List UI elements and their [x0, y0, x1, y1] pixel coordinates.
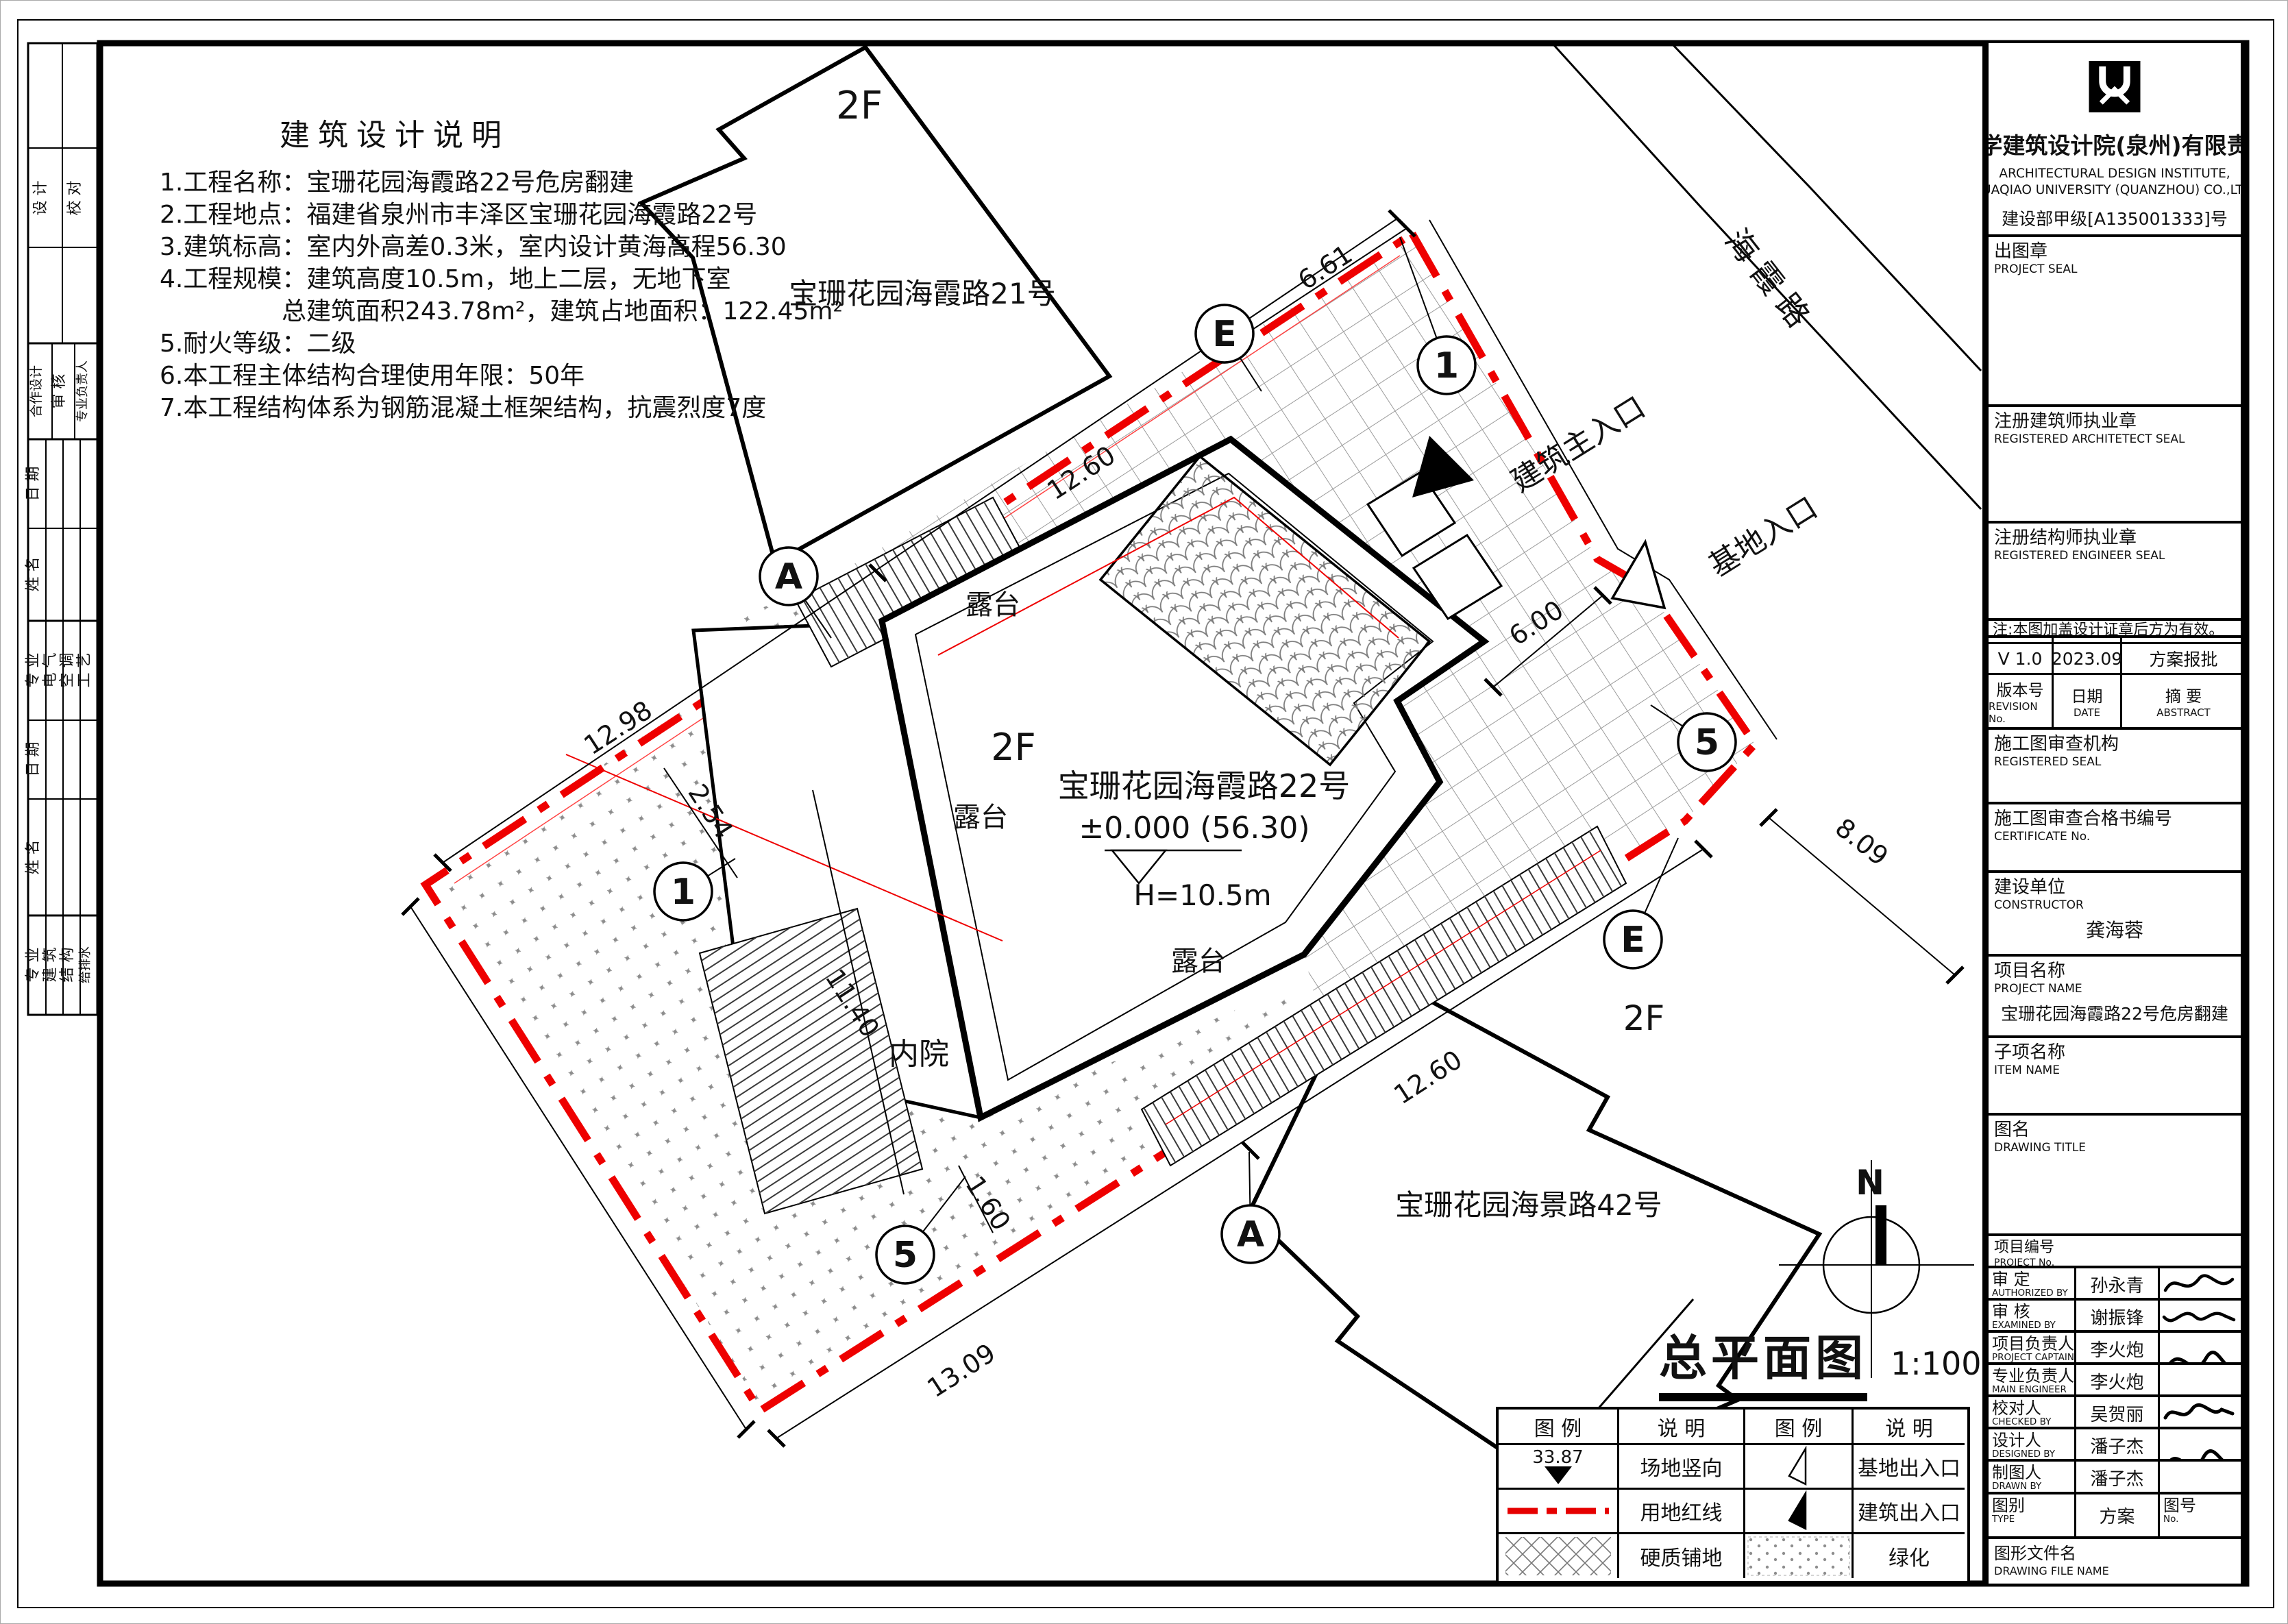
sig-role-en: MAIN ENGINEER: [1992, 1385, 2071, 1395]
dim-8-09: 8.09: [1830, 812, 1894, 872]
constructor-cn: 建设单位: [1994, 877, 2235, 898]
title-block: 华侨大学建筑设计院(泉州)有限责任公司 ARCHITECTURAL DESIGN…: [1984, 43, 2246, 1584]
sig-role-en: CHECKED BY: [1992, 1417, 2071, 1427]
note-line: 7.本工程结构体系为钢筋混凝土框架结构，抗震烈度7度: [160, 392, 811, 424]
revision-table: V 1.0 2023.09 方案报批 版本号 REVISION No. 日期 D…: [1989, 638, 2241, 730]
company-name-en1: ARCHITECTURAL DESIGN INSTITUTE,: [1989, 166, 2241, 182]
legend-desc: 场地竖向: [1619, 1445, 1745, 1490]
legend-desc: 硬质铺地: [1619, 1534, 1745, 1578]
legend-desc: 绿化: [1854, 1534, 1965, 1578]
sig-role-cn: 审 核: [1992, 1303, 2071, 1320]
signature-scribble: [2160, 1397, 2241, 1429]
sig-role-en: DESIGNED BY: [1992, 1449, 2071, 1460]
sig-role-cn: 校对人: [1992, 1399, 2071, 1417]
project-name-cn: 项目名称: [1994, 961, 2235, 981]
signature-row: 专业负责人MAIN ENGINEER 李火炮: [1989, 1365, 2241, 1397]
project-name-value: 宝珊花园海霞路22号危房翻建: [1989, 1000, 2241, 1025]
architect-seal-en: REGISTERED ARCHITETECT SEAL: [1994, 432, 2235, 447]
plan-title-text: 总平面图: [1659, 1320, 1867, 1401]
sidebar-cell: 审 核: [51, 374, 68, 409]
legend-header: 说 明: [1854, 1410, 1965, 1445]
sig-name: 潘子杰: [2076, 1462, 2160, 1494]
legend-desc: 基地出入口: [1854, 1445, 1965, 1490]
signature-row: 校对人CHECKED BY 吴贺丽: [1989, 1397, 2241, 1429]
review-org-cn: 施工图审查机构: [1994, 734, 2235, 754]
review-org-en: REGISTERED SEAL: [1994, 754, 2235, 770]
architect-seal-cell: 注册建筑师执业章 REGISTERED ARCHITETECT SEAL: [1989, 407, 2241, 524]
note-line: 5.耐火等级：二级: [160, 328, 811, 360]
sig-role-en: AUTHORIZED BY: [1992, 1288, 2071, 1299]
sig-role-en: EXAMINED BY: [1992, 1320, 2071, 1331]
spot-elevation-icon: [1545, 1466, 1572, 1484]
sig-role-cn: 项目负责人: [1992, 1335, 2071, 1353]
sidebar-cell: 建 筑: [42, 948, 59, 983]
rev-col2-en: DATE: [2074, 706, 2100, 719]
sidebar-cell: 专 业: [25, 653, 42, 688]
type-en: TYPE: [1992, 1514, 2071, 1525]
revision-col3-header: 摘 要 ABSTRACT: [2122, 675, 2241, 727]
validity-note: 注:本图加盖设计证章后方为有效。: [1993, 621, 2224, 638]
legend-symbol-spot-elevation: 33.87: [1499, 1445, 1619, 1490]
axis-bubble-label: 1: [671, 872, 696, 913]
file-name-en: DRAWING FILE NAME: [1994, 1564, 2235, 1579]
item-name-cn: 子项名称: [1994, 1042, 2235, 1063]
plan-title: 总平面图 1:100: [1659, 1320, 1982, 1401]
legend-symbol-hard-paving: [1499, 1534, 1619, 1578]
revision-empty: [1989, 638, 2054, 644]
legend-header: 图 例: [1499, 1410, 1619, 1445]
company-name-cn: 华侨大学建筑设计院(泉州)有限责任公司: [1989, 127, 2241, 160]
certificate-no-cell: 施工图审查合格书编号 CERTIFICATE No.: [1989, 804, 2241, 873]
note-line: 2.工程地点：福建省泉州市丰泽区宝珊花园海霞路22号: [160, 199, 811, 231]
company-header: 华侨大学建筑设计院(泉州)有限责任公司 ARCHITECTURAL DESIGN…: [1989, 43, 2241, 237]
sig-name: 潘子杰: [2076, 1429, 2160, 1462]
dim-13-09: 13.09: [922, 1338, 1000, 1403]
company-certificate: 建设部甲级[A135001333]号: [2002, 206, 2228, 230]
signature-row: 设计人DESIGNED BY 潘子杰: [1989, 1429, 2241, 1462]
sidebar-cell: 电 气: [42, 653, 59, 688]
terrace-label: 露台: [1171, 946, 1226, 977]
axis-bubble-label: 1: [1434, 345, 1459, 386]
rev-col1-en: REVISION No.: [1989, 700, 2052, 725]
drawing-no-cn: 图号: [2163, 1497, 2237, 1514]
architect-seal-cn: 注册建筑师执业章: [1994, 411, 2235, 432]
drawing-title-cn: 图名: [1994, 1120, 2235, 1140]
legend-table: 图 例 说 明 图 例 说 明 33.87 场地竖向 基地出入口 用地红线 建筑…: [1496, 1407, 1970, 1584]
drawing-title-cell: 图名 DRAWING TITLE: [1989, 1116, 2241, 1236]
note-line: 4.工程规模：建筑高度10.5m，地上二层，无地下室: [160, 263, 811, 295]
main-building-height: H=10.5m: [1133, 878, 1271, 912]
type-row: 图别TYPE 方案 图号No.: [1989, 1494, 2241, 1539]
certificate-no-cn: 施工图审查合格书编号: [1994, 809, 2235, 829]
design-notes: 建筑设计说明 1.工程名称：宝珊花园海霞路22号危房翻建 2.工程地点：福建省泉…: [160, 110, 811, 424]
main-building-level: ±0.000 (56.30): [1079, 811, 1309, 846]
legend-header: 图 例: [1745, 1410, 1854, 1445]
axis-bubble-label: 5: [893, 1235, 918, 1276]
sidebar-cell: 校 对: [66, 181, 84, 216]
sig-role-cn: 设计人: [1992, 1431, 2071, 1449]
revision-empty: [2054, 638, 2122, 644]
sidebar-cell: 姓 名: [25, 840, 42, 875]
neighbor-south-label: 宝珊花园海景路42号: [1395, 1188, 1662, 1222]
engineer-seal-cell: 注册结构师执业章 REGISTERED ENGINEER SEAL: [1989, 524, 2241, 621]
drawing-sheet: 设 计 校 对 合作设计 审 核 专业负责人 日 期 姓 名 专 业 电 气 空…: [0, 0, 2288, 1624]
plan-title-scale: 1:100: [1891, 1345, 1982, 1382]
note-line: 6.本工程主体结构合理使用年限：50年: [160, 360, 811, 392]
constructor-en: CONSTRUCTOR: [1994, 898, 2235, 913]
drawing-title-en: DRAWING TITLE: [1994, 1140, 2235, 1155]
signature-row: 制图人DRAWN BY 潘子杰: [1989, 1462, 2241, 1494]
revision-col2-header: 日期 DATE: [2054, 675, 2122, 727]
sidebar-cell: 结 构: [59, 948, 76, 983]
project-name-cell: 项目名称 PROJECT NAME 宝珊花园海霞路22号危房翻建: [1989, 957, 2241, 1038]
project-name-en: PROJECT NAME: [1994, 981, 2235, 996]
axis-bubble-label: E: [1212, 314, 1237, 355]
signature-scribble: [2160, 1268, 2241, 1301]
signature-row: 审 核EXAMINED BY 谢振锋: [1989, 1301, 2241, 1333]
revision-col1-header: 版本号 REVISION No.: [1989, 675, 2054, 727]
project-no-cell: 项目编号 PROJECT No.: [1989, 1236, 2241, 1268]
filled-triangle-icon: [1785, 1490, 1812, 1531]
signature-scribble: [2160, 1365, 2241, 1397]
terrace-label: 露台: [965, 589, 1020, 621]
sidebar-cell: 合作设计: [29, 365, 44, 417]
signature-row: 审 定AUTHORIZED BY 孙永青: [1989, 1268, 2241, 1301]
sig-role-cn: 制图人: [1992, 1464, 2071, 1481]
company-name-en2: HUAQIAO UNIVERSITY (QUANZHOU) CO.,LTD.: [1989, 182, 2241, 199]
sig-role-en: PROJECT CAPTAIN: [1992, 1353, 2071, 1363]
rev-col3-en: ABSTRACT: [2156, 706, 2210, 719]
notes-title: 建筑设计说明: [280, 110, 811, 154]
item-name-cell: 子项名称 ITEM NAME: [1989, 1038, 2241, 1116]
site-entrance-label: 基地入口: [1703, 490, 1823, 584]
signature-scribble: [2160, 1301, 2241, 1333]
sig-name: 李火炮: [2076, 1333, 2160, 1365]
sig-name: 孙永青: [2076, 1268, 2160, 1301]
note-line: 3.建筑标高：室内外高差0.3米，室内设计黄海高程56.30: [160, 231, 811, 263]
sidebar-cell: 日 期: [25, 742, 42, 777]
note-line: 总建筑面积243.78m²，建筑占地面积：122.45m²: [160, 295, 811, 328]
file-name-cn: 图形文件名: [1994, 1543, 2235, 1564]
sig-role-en: DRAWN BY: [1992, 1481, 2071, 1492]
rev-col1-cn: 版本号: [1997, 677, 2044, 700]
constructor-value: 龚海蓉: [1989, 915, 2241, 943]
legend-symbol-greenery: [1745, 1534, 1854, 1578]
company-logo-icon: [2089, 61, 2141, 112]
terrace-label: 露台: [953, 802, 1008, 833]
sidebar-cell: 专业负责人: [75, 360, 90, 422]
sig-role-cn: 专业负责人: [1992, 1367, 2071, 1385]
signature-scribble: [2160, 1333, 2241, 1365]
legend-header: 说 明: [1619, 1410, 1745, 1445]
file-name-cell: 图形文件名 DRAWING FILE NAME: [1989, 1539, 2241, 1584]
sig-role-cn: 审 定: [1992, 1270, 2071, 1288]
axis-bubble-label: A: [1237, 1214, 1264, 1255]
review-org-cell: 施工图审查机构 REGISTERED SEAL: [1989, 730, 2241, 804]
constructor-cell: 建设单位 CONSTRUCTOR 龚海蓉: [1989, 873, 2241, 957]
spot-elevation-value: 33.87: [1532, 1449, 1583, 1466]
open-triangle-icon: [1785, 1446, 1812, 1487]
sig-name: 吴贺丽: [2076, 1397, 2160, 1429]
sidebar-cell: 专 业: [25, 948, 42, 983]
greenery-dots-icon: [1747, 1536, 1850, 1576]
sidebar-cell: 给排水: [78, 946, 93, 983]
note-line: 1.工程名称：宝珊花园海霞路22号危房翻建: [160, 167, 811, 199]
floors-label-2f: 2F: [1623, 998, 1665, 1038]
road-label: 海霞路: [1718, 222, 1823, 342]
rev-col3-cn: 摘 要: [2165, 683, 2202, 706]
certificate-no-en: CERTIFICATE No.: [1994, 829, 2235, 844]
axis-bubble-label: 5: [1695, 722, 1719, 763]
signature-scribble: [2160, 1462, 2241, 1494]
legend-symbol-building-entrance: [1745, 1490, 1854, 1534]
revision-abstract: 方案报批: [2122, 644, 2241, 675]
signature-scribble: [2160, 1429, 2241, 1462]
signature-row: 项目负责人PROJECT CAPTAIN 李火炮: [1989, 1333, 2241, 1365]
drawing-no-en: No.: [2163, 1514, 2237, 1525]
axis-bubble-label: E: [1621, 920, 1645, 961]
sidebar-cell: 姓 名: [25, 557, 42, 592]
main-building-name: 宝珊花园海霞路22号: [1058, 767, 1351, 804]
sidebar-cell: 空 调: [59, 653, 76, 688]
project-no-cn: 项目编号: [1994, 1239, 2054, 1256]
sidebar-cell: 设 计: [32, 181, 49, 216]
red-dashdot-icon: [1505, 1504, 1612, 1518]
sig-name: 李火炮: [2076, 1365, 2160, 1397]
revision-empty: [2122, 638, 2241, 644]
rev-col2-cn: 日期: [2071, 683, 2103, 706]
sig-name: 谢振锋: [2076, 1301, 2160, 1333]
floors-label-2f: 2F: [991, 726, 1035, 769]
revision-version: V 1.0: [1989, 644, 2054, 675]
type-value: 方案: [2076, 1494, 2160, 1536]
item-name-en: ITEM NAME: [1994, 1063, 2235, 1078]
north-label: N: [1856, 1163, 1884, 1203]
engineer-seal-cn: 注册结构师执业章: [1994, 528, 2235, 548]
legend-desc: 建筑出入口: [1854, 1490, 1965, 1534]
sidebar-cell: 工 艺: [76, 653, 93, 688]
legend-symbol-red-line: [1499, 1490, 1619, 1534]
project-seal-cn: 出图章: [1994, 241, 2235, 262]
validity-note-cell: 注:本图加盖设计证章后方为有效。: [1989, 621, 2241, 638]
revision-date: 2023.09: [2054, 644, 2122, 675]
crosshatch-icon: [1505, 1536, 1612, 1576]
axis-bubble-label: A: [775, 556, 802, 598]
project-seal-cell: 出图章 PROJECT SEAL: [1989, 237, 2241, 407]
legend-symbol-site-entrance: [1745, 1445, 1854, 1490]
left-sidebar: 设 计 校 对 合作设计 审 核 专业负责人 日 期 姓 名 专 业 电 气 空…: [25, 43, 97, 1015]
floors-label-2f: 2F: [836, 84, 883, 128]
courtyard-label: 内院: [889, 1037, 949, 1072]
engineer-seal-en: REGISTERED ENGINEER SEAL: [1994, 548, 2235, 563]
legend-desc: 用地红线: [1619, 1490, 1745, 1534]
sidebar-cell: 日 期: [25, 467, 42, 502]
type-cn: 图别: [1992, 1497, 2071, 1514]
project-no-en: PROJECT No.: [1994, 1258, 2235, 1268]
project-seal-en: PROJECT SEAL: [1994, 262, 2235, 277]
